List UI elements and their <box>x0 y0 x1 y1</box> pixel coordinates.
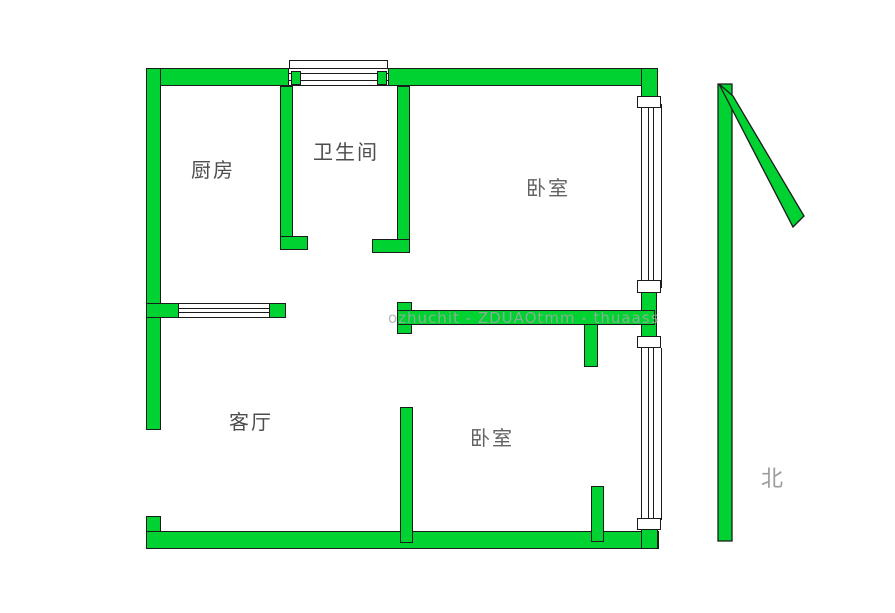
north-label: 北 <box>761 461 783 493</box>
right-window1-sill-top <box>637 96 661 108</box>
floorplan-canvas: 厨房 卫生间 卧室 客厅 卧室 北 ozhuchit - ZDUAOtmm - … <box>0 0 895 613</box>
bedroom-bottom-stub <box>591 486 604 542</box>
wall-top-right <box>387 68 658 86</box>
living-bedroom-divider <box>400 407 413 543</box>
mid-wall-end-block <box>269 303 286 318</box>
top-window <box>288 68 389 86</box>
bathroom-label: 卫生间 <box>313 141 379 163</box>
top-window-post-left <box>291 71 301 85</box>
living-room-label: 客厅 <box>229 411 273 433</box>
kitchen-bath-divider-foot <box>280 236 308 250</box>
wall-right-bottom <box>641 528 658 549</box>
bedroom-bottom-label: 卧室 <box>470 427 514 449</box>
mid-wall-left-stub <box>146 303 179 318</box>
wall-left-upper <box>146 68 161 430</box>
north-arrow-shaft <box>718 84 732 541</box>
right-window2-sill-bottom <box>637 518 661 530</box>
right-window1-sill-bottom <box>637 280 661 293</box>
right-window2-sill-top <box>637 336 661 348</box>
bathroom-right-wall <box>397 86 410 253</box>
right-window2-face <box>661 348 662 520</box>
bedroom-top-label: 卧室 <box>526 177 570 199</box>
right-window1 <box>641 104 654 290</box>
watermark-text: ozhuchit - ZDUAOtmm - thuaass <box>388 309 658 327</box>
right-window1-face <box>661 104 662 288</box>
right-window2 <box>641 346 654 524</box>
mid-wall-window <box>178 303 270 318</box>
kitchen-bath-divider <box>280 86 293 237</box>
wall-top-left <box>146 68 293 86</box>
kitchen-label: 厨房 <box>191 159 235 181</box>
bathroom-right-wall-foot <box>372 239 410 253</box>
mid-wall-hang-stub <box>584 324 598 367</box>
top-window-post-right <box>377 71 387 85</box>
